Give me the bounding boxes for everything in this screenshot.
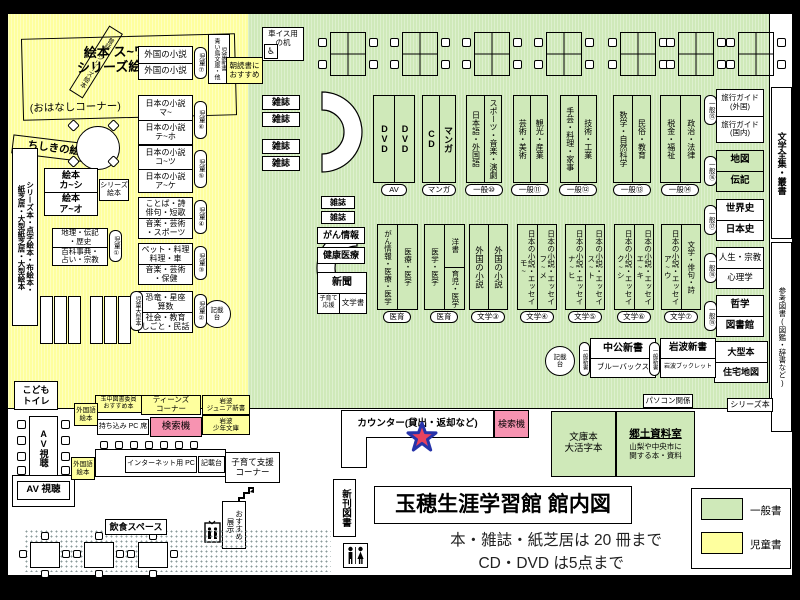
iwanami-junior-box: 岩波 ジュニア新書 — [202, 395, 250, 415]
newspaper-box: 新聞 子育て 応援 文学書 — [317, 272, 367, 314]
toilet-icon — [343, 543, 368, 568]
chair — [17, 420, 26, 429]
chair — [170, 550, 178, 558]
shelf-science-folklore: 数学・自然科学 民俗・教育 — [613, 95, 651, 183]
shelf-cell: 外国の小説 — [139, 47, 192, 63]
geography-biography-history: 地理・伝記 ・歴史 — [53, 229, 107, 247]
chair — [73, 550, 81, 558]
shelf-art-tourism: 芸術・美術 観光・産業 — [513, 95, 548, 183]
kids-shelf-jp-novels-ma: 日本の小説 マ~ 日本の小説 テ~ホ — [138, 95, 193, 145]
magazine-rack: 雑誌 — [262, 156, 300, 171]
shelf-cell: 哲学 — [717, 296, 763, 316]
counter-leg — [341, 437, 367, 468]
kids-bookshelf-bar — [68, 296, 81, 344]
chair — [513, 60, 522, 69]
shelf-cell: 育児・医学 — [445, 267, 464, 310]
shelf-cell: 心理学 — [717, 268, 763, 289]
chair — [777, 60, 786, 69]
shelf-cell: 岩波ブックレット — [661, 358, 715, 378]
shelf-cell: 中公新書 — [591, 339, 655, 358]
chair — [390, 38, 399, 47]
shelf-cell: 税金・福祉 — [661, 96, 680, 182]
bunko-large-print-room: 文庫本 大活字本 — [551, 411, 616, 477]
crescent-bench-upper — [320, 90, 364, 174]
chair — [513, 38, 522, 47]
kids-reference-shelf: 地理・伝記 ・歴史 百科事典・ 占い・宗教 — [52, 228, 108, 266]
tag-general-18: 一般⑱ — [704, 253, 717, 283]
iwanami-shonen-box: 岩波 少年文庫 — [202, 415, 250, 435]
stool — [130, 441, 138, 449]
reading-table — [546, 32, 582, 76]
eating-table — [138, 542, 168, 568]
shelf-cell: 日本の小説・エッセイ ア~ウ — [662, 225, 681, 309]
search-terminal-teens: 検索機 — [150, 417, 202, 437]
shelf-jp-novels-ku: 日本の小説・エッセイ ク~シ 日本の小説・エッセイ エ~キ — [614, 224, 654, 310]
shelf-cell: 日本の小説 マ~ — [139, 96, 192, 120]
shelf-language-performing: 日本語・外国語 スポーツ・音楽・演劇 — [466, 95, 502, 183]
pc-related-label: パソコン関係 — [643, 394, 693, 408]
library-floor-map: 絵本 ス~ワ シリーズ絵本 (おはなしコーナー) 昔話・シリーズ絵本 ちしきの絵… — [0, 0, 800, 600]
stool — [145, 441, 153, 449]
local-materials-room: 郷土資料室 山梨や中央市に 関する本・資料 — [616, 411, 695, 477]
kids-shelf-dinosaur-society: 恐竜・星座 算数 社会・教育 しごと・民話 — [138, 291, 193, 333]
shelf-cell: がん情報・医療・医学 — [378, 225, 397, 309]
shelf-cell: 手芸・料理・家事 — [561, 96, 578, 182]
kids-shelf-language-arts: ことば・詩 俳句・短歌 音楽・芸術 ・スポーツ — [138, 197, 193, 239]
chair — [666, 38, 675, 47]
shelf-foreign-novels: 外国の小説 外国の小説 — [469, 224, 508, 310]
magazine-rack: 雑誌 — [262, 95, 300, 110]
chair — [726, 38, 735, 47]
byod-pc-seats: 持ち込み PC 席 — [97, 419, 149, 435]
shelf-cell: 日本の小説・エッセイ エ~キ — [634, 225, 654, 309]
shelf-cell: 政治・法律 — [680, 96, 700, 182]
stage-subtitle: (おはなしコーナー) — [30, 100, 121, 114]
kids-shelf-foreign-novels: 外国の小説 外国の小説 — [138, 46, 193, 80]
tag-shinsho-1: 一般新書 — [579, 342, 590, 376]
chair — [127, 550, 135, 558]
teens-corner-box: ティーンズ コーナー — [141, 395, 201, 415]
parenting-support-label: 子育て 応援 — [318, 294, 340, 314]
chair — [41, 532, 49, 540]
tag-general-15: 一般⑮ — [704, 95, 717, 125]
shelf-oversize-books: 大型本 住宅地図 — [714, 341, 768, 383]
chair — [17, 452, 26, 461]
tag-general-13: 一般⑬ — [613, 184, 651, 196]
shelf-tax-politics: 税金・福祉 政治・法律 — [660, 95, 701, 183]
stool — [100, 441, 108, 449]
kids-tag-3: 児童③ — [194, 246, 207, 280]
reference-books-strip: 参考図書(図鑑・辞書など) — [771, 242, 792, 432]
kids-tag-7: 児童⑦ — [194, 47, 207, 79]
shelf-cell: 人生・宗教 — [717, 248, 763, 268]
tag-manga: マンガ — [422, 184, 456, 196]
shelf-cell: 外国の小説 — [139, 63, 192, 80]
reading-table — [620, 32, 656, 76]
chair — [462, 60, 471, 69]
legend-swatch-children — [701, 532, 743, 554]
chair — [534, 38, 543, 47]
wheelchair-icon: ♿ — [264, 44, 278, 59]
chair — [95, 570, 103, 578]
shelf-cell: 日本の小説 テ~ホ — [139, 120, 192, 145]
shelf-cell: 洋書 — [445, 225, 464, 267]
shelf-cell: スポーツ・音楽・演劇 — [484, 96, 502, 182]
chair — [462, 38, 471, 47]
writing-desk-label: 記載台 — [198, 456, 225, 473]
reading-table — [402, 32, 438, 76]
legend-label-children: 児童書 — [750, 537, 782, 552]
shelf-maps-biography: 地図 伝記 — [716, 150, 764, 192]
shelf-cell: 数学・自然科学 — [614, 96, 632, 182]
chair — [666, 60, 675, 69]
shelf-cell: 音楽・芸術 ・スポーツ — [139, 218, 192, 239]
lending-rule-av: CD・DVD は5点まで — [370, 551, 624, 573]
series-books-label: シリーズ本 — [727, 398, 773, 412]
stool — [175, 441, 183, 449]
kids-bookshelf-bar — [40, 296, 53, 344]
eating-table — [30, 542, 60, 568]
tag-literature-6: 文学⑥ — [617, 311, 651, 323]
new-books-shelf: 新刊図書 — [333, 479, 356, 537]
legend-label-general: 一般書 — [750, 503, 782, 518]
you-are-here-star — [406, 421, 438, 453]
shelf-medical-1: がん情報・医療・医学 医療・医学 — [377, 224, 418, 310]
shelf-cell: 図書館 — [717, 316, 763, 337]
shelf-cell: DVD — [394, 96, 415, 182]
shelf-jp-novels-a: 日本の小説・エッセイ ア~ウ 文学・俳句・詩 — [661, 224, 701, 310]
series-braille-kamishibai-wall: シリーズ本・点字絵本・布絵本・ 紙芝居・大型紙芝居・大型絵本 — [12, 148, 38, 326]
picture-books-shelf: 絵本 カ~シ 絵本 ア~オ — [44, 168, 98, 216]
shelf-cell: 伝記 — [717, 171, 763, 192]
shelf-cell: 民俗・教育 — [632, 96, 651, 182]
tag-literature-7: 文学⑦ — [664, 311, 698, 323]
chair — [534, 60, 543, 69]
chair — [61, 420, 70, 429]
eating-space-label: 飲食スペース — [105, 519, 167, 535]
shelf-cell: 医療・医学 — [397, 225, 417, 309]
chair — [369, 60, 378, 69]
newspaper-subrow: 子育て 応援 文学書 — [318, 293, 366, 314]
shelf-chuko-shinsho: 中公新書 ブルーバックス — [590, 338, 656, 378]
tag-shinsho-2: 一般新書 — [649, 342, 660, 376]
chair — [95, 532, 103, 540]
picture-books-ka-shi: 絵本 カ~シ — [45, 169, 97, 192]
stool — [190, 441, 198, 449]
shelf-cell: 旅行ガイド (外国) — [717, 90, 763, 116]
foreign-picture-books-box-2: 外国語 絵本 — [71, 457, 95, 480]
shelf-cell: 住宅地図 — [715, 362, 767, 383]
kids-large-books-tag: 児童大型本 — [130, 291, 143, 331]
reading-table — [738, 32, 774, 76]
tag-literature-4: 文学④ — [520, 311, 554, 323]
reading-table — [474, 32, 510, 76]
kids-writing-desk: 記載 台 — [203, 300, 231, 328]
internet-pc-label: インターネット用 PC — [125, 456, 197, 473]
tag-general-19: 一般⑲ — [704, 301, 717, 331]
shelf-cell: 技術・工業 — [578, 96, 596, 182]
kids-tag-1: 児童① — [109, 230, 122, 262]
tag-av: AV — [381, 184, 407, 196]
local-room-desc: 山梨や中央市に 関する本・資料 — [629, 443, 682, 460]
reading-table — [330, 32, 366, 76]
shelf-iwanami-shinsho: 岩波新書 岩波ブックレット — [660, 338, 716, 378]
chair — [369, 38, 378, 47]
health-medical-box: 健康医療 — [317, 247, 365, 264]
magazine-rack: 雑誌 — [262, 112, 300, 127]
kids-shelf-pets-cooking: ペット・料理 料理・車 音楽・芸術 ・保健 — [138, 243, 193, 285]
tag-general-16: 一般⑯ — [704, 156, 717, 186]
shelf-split-column: 洋書 育児・医学 — [444, 225, 464, 309]
tag-medical-2: 医育 — [430, 311, 458, 323]
shelf-crafts-technology: 手芸・料理・家事 技術・工業 — [560, 95, 597, 183]
shelf-world-japan-history: 世界史 日本史 — [716, 199, 764, 241]
lending-rule-books: 本・雑誌・紙芝居は 20 冊まで — [370, 528, 662, 550]
shelf-philosophy-library: 哲学 図書館 — [716, 295, 764, 337]
chair — [717, 60, 726, 69]
shelf-cell: 観光・産業 — [530, 96, 547, 182]
shelf-life-psychology: 人生・宗教 心理学 — [716, 247, 764, 289]
shelf-cell: 地図 — [717, 151, 763, 171]
shelf-cell: 岩波新書 — [661, 339, 715, 358]
kids-bookshelf-bar — [104, 296, 117, 344]
shelf-jp-novels-mo: 日本の小説・エッセイ モ~ 日本の小説・エッセイ フ~メ — [517, 224, 557, 310]
tag-general-12: 一般⑫ — [559, 184, 597, 196]
shelf-cell: ブルーバックス — [591, 358, 655, 378]
shelf-cell: 恐竜・星座 算数 — [139, 292, 192, 312]
chair — [41, 570, 49, 578]
tag-general-10: 一般⑩ — [465, 184, 503, 196]
kids-tag-5: 児童⑤ — [194, 150, 207, 188]
shelf-cell: 芸術・美術 — [514, 96, 530, 182]
chair — [19, 550, 27, 558]
chair — [318, 60, 327, 69]
shelf-cell: DVD — [374, 96, 394, 182]
chair — [149, 570, 157, 578]
chair — [441, 60, 450, 69]
shelf-cd-manga: CD マンガ — [422, 95, 456, 183]
floor-map-title: 玉穂生涯学習館 館内図 — [374, 486, 632, 524]
magazine-rack: 雑誌 — [321, 211, 355, 224]
shelf-cell: 音楽・芸術 ・保健 — [139, 264, 192, 285]
shelf-cell: 外国の小説 — [470, 225, 488, 309]
series-picture-books-tag: シリーズ 絵本 — [99, 179, 129, 201]
shelf-cell: 大型本 — [715, 342, 767, 362]
chair — [318, 38, 327, 47]
chair — [717, 38, 726, 47]
shelf-cell: 日本の小説・エッセイ ス~ト — [585, 225, 605, 309]
shelf-cell: 社会・教育 しごと・民話 — [139, 312, 192, 333]
kids-bookshelf-bar — [54, 296, 67, 344]
foreign-picture-books-box: 外国語 絵本 — [74, 403, 98, 426]
childcare-support-corner: 子育て支援 コーナー — [225, 452, 280, 483]
shelf-cell: ことば・詩 俳句・短歌 — [139, 198, 192, 218]
magazine-rack: 雑誌 — [262, 139, 300, 154]
local-room-title: 郷土資料室 — [629, 428, 682, 440]
tag-general-17: 一般⑰ — [704, 205, 717, 235]
committee-recommendation-box: 玉中図書委員 おすすめ本 — [95, 395, 142, 413]
shelf-cell: 旅行ガイド (国内) — [717, 116, 763, 143]
chair — [17, 436, 26, 445]
cancer-info-box: がん情報 — [317, 227, 365, 244]
shelf-medical-2: 医学・医学 洋書 育児・医学 — [424, 224, 465, 310]
shelf-dvd: DVD DVD — [373, 95, 415, 183]
stool — [160, 441, 168, 449]
tag-general-14: 一般⑭ — [661, 184, 699, 196]
shelf-cell: ペット・料理 料理・車 — [139, 244, 192, 264]
chair — [777, 38, 786, 47]
chair — [608, 38, 617, 47]
kids-tag-6: 児童⑥ — [194, 101, 207, 139]
tag-literature-3: 文学③ — [471, 311, 505, 323]
picture-books-a-o: 絵本 ア~オ — [45, 192, 97, 216]
literary-collection-strip: 文学全集・叢書 — [771, 87, 792, 239]
shelf-travel-guides: 旅行ガイド (外国) 旅行ガイド (国内) — [716, 89, 764, 143]
av-viewing-table: AV視聴 — [29, 416, 58, 480]
legend-swatch-general — [701, 498, 743, 520]
kids-bookshelf-bar — [90, 296, 103, 344]
general-writing-desk: 記載 台 — [545, 346, 575, 376]
shelf-cell: 日本の小説・エッセイ ク~シ — [615, 225, 634, 309]
morning-reading-recommendation: 朝読書に おすすめ — [226, 57, 263, 84]
tag-medical-1: 医育 — [383, 311, 411, 323]
chair — [726, 60, 735, 69]
kids-tag-4: 児童④ — [194, 200, 207, 234]
tag-literature-5: 文学⑤ — [568, 311, 602, 323]
chair — [585, 60, 594, 69]
shelf-cell: 日本の小説・エッセイ フ~メ — [537, 225, 557, 309]
reading-table — [678, 32, 714, 76]
tag-general-11: 一般⑪ — [511, 184, 549, 196]
chair — [62, 550, 70, 558]
chair — [585, 38, 594, 47]
shelf-cell: CD — [423, 96, 439, 182]
shelf-cell: 日本史 — [717, 220, 763, 241]
shelf-cell: 外国の小説 — [488, 225, 507, 309]
chair — [608, 60, 617, 69]
magazine-rack: 雑誌 — [321, 196, 355, 209]
chair — [61, 436, 70, 445]
shelf-jp-novels-na: 日本の小説・エッセイ ナ~ヒ 日本の小説・エッセイ ス~ト — [565, 224, 605, 310]
av-viewing-label: AV 視聴 — [17, 481, 70, 500]
shelf-cell: マンガ — [439, 96, 456, 182]
search-terminal-counter: 検索機 — [494, 410, 529, 438]
shelf-cell: 医学・医学 — [425, 225, 444, 309]
chair — [17, 466, 26, 475]
shelf-cell: 日本の小説・エッセイ ナ~ヒ — [566, 225, 585, 309]
kids-tag-2: 児童② — [194, 294, 207, 328]
shelf-cell: 世界史 — [717, 200, 763, 220]
chair — [441, 38, 450, 47]
shelf-cell: 日本語・外国語 — [467, 96, 484, 182]
literature-label: 文学書 — [340, 294, 366, 314]
kids-toilet: こども トイレ — [14, 381, 58, 410]
shelf-cell: 文学・俳句・詩 — [681, 225, 701, 309]
newspaper-label: 新聞 — [318, 273, 366, 293]
shelf-cell: 日本の小説 コ~ツ — [139, 146, 192, 169]
stool — [115, 441, 123, 449]
shelf-cell: 日本の小説・エッセイ モ~ — [518, 225, 537, 309]
eating-table — [84, 542, 114, 568]
chair — [61, 452, 70, 461]
encyclopedia-fortune-religion: 百科事典・ 占い・宗教 — [53, 247, 107, 266]
chair — [116, 550, 124, 558]
chair — [390, 60, 399, 69]
shelf-cell: 日本の小説 ア~ケ — [139, 169, 192, 193]
kids-shelf-jp-novels-ko: 日本の小説 コ~ツ 日本の小説 ア~ケ — [138, 145, 193, 193]
chair — [61, 466, 70, 475]
